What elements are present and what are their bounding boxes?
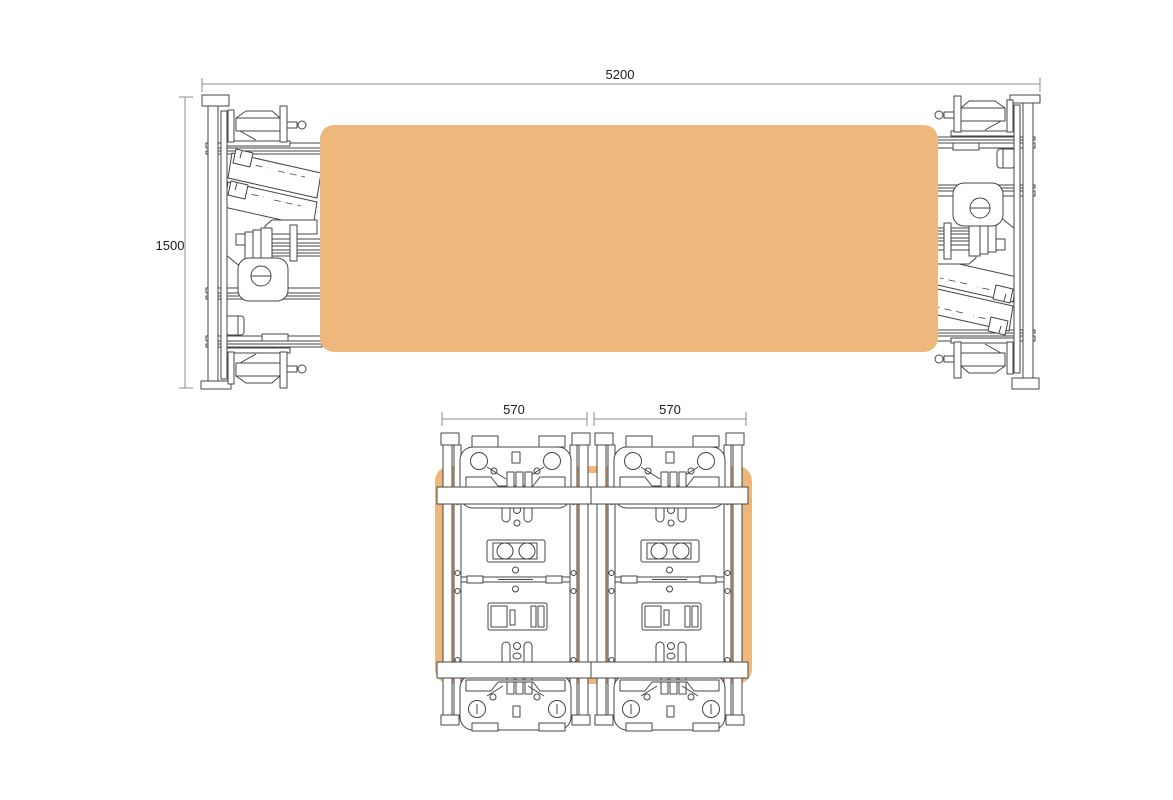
drawing-svg: 5200 1500 570 570 bbox=[0, 0, 1173, 800]
side-view-height-label: 1500 bbox=[156, 238, 185, 253]
side-view-left-assembly bbox=[201, 95, 322, 389]
side-view-width-dimension: 5200 bbox=[202, 67, 1040, 92]
end-view-module2-label: 570 bbox=[659, 402, 681, 417]
side-view: 5200 1500 bbox=[156, 67, 1040, 389]
side-view-panel bbox=[320, 125, 938, 352]
end-view-module2-dimension: 570 bbox=[594, 402, 746, 426]
end-view-module1-label: 570 bbox=[503, 402, 525, 417]
end-view-module-1 bbox=[437, 433, 594, 731]
technical-drawing-canvas: 5200 1500 570 570 bbox=[0, 0, 1173, 800]
side-view-height-dimension: 1500 bbox=[156, 97, 193, 388]
side-view-width-label: 5200 bbox=[606, 67, 635, 82]
end-view-module-2 bbox=[591, 433, 748, 731]
end-view-module1-dimension: 570 bbox=[442, 402, 587, 426]
end-view: 570 570 bbox=[435, 402, 752, 731]
